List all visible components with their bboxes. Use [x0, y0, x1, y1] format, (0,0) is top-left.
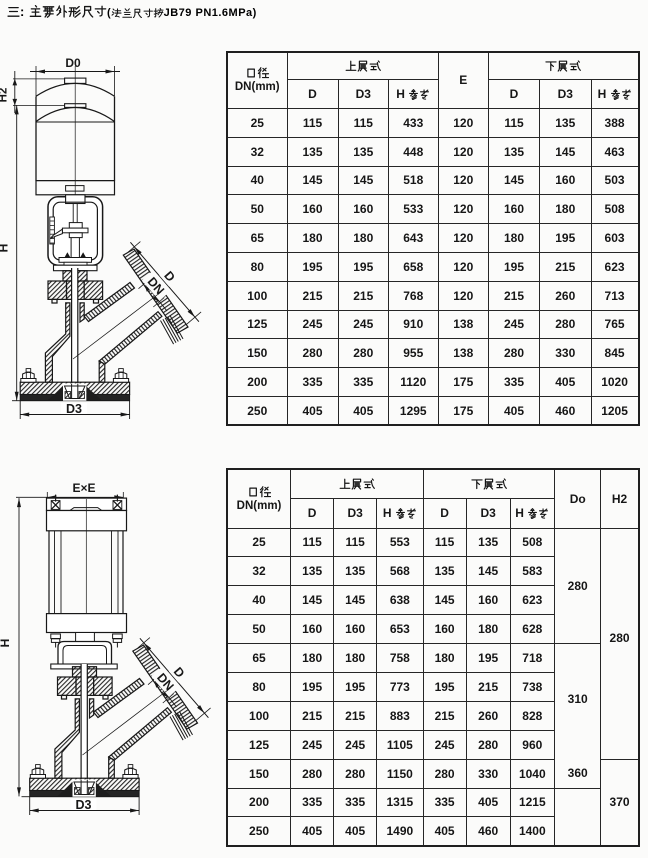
svg-text:H: H [0, 244, 11, 253]
svg-text:D: D [161, 268, 177, 284]
svg-text:D0: D0 [65, 56, 81, 70]
svg-text:H2: H2 [0, 88, 10, 103]
svg-text:E×E: E×E [72, 481, 95, 495]
svg-text:H: H [0, 639, 12, 648]
svg-text:D3: D3 [66, 402, 82, 416]
svg-text:D: D [171, 664, 187, 680]
svg-text:D3: D3 [76, 798, 92, 812]
